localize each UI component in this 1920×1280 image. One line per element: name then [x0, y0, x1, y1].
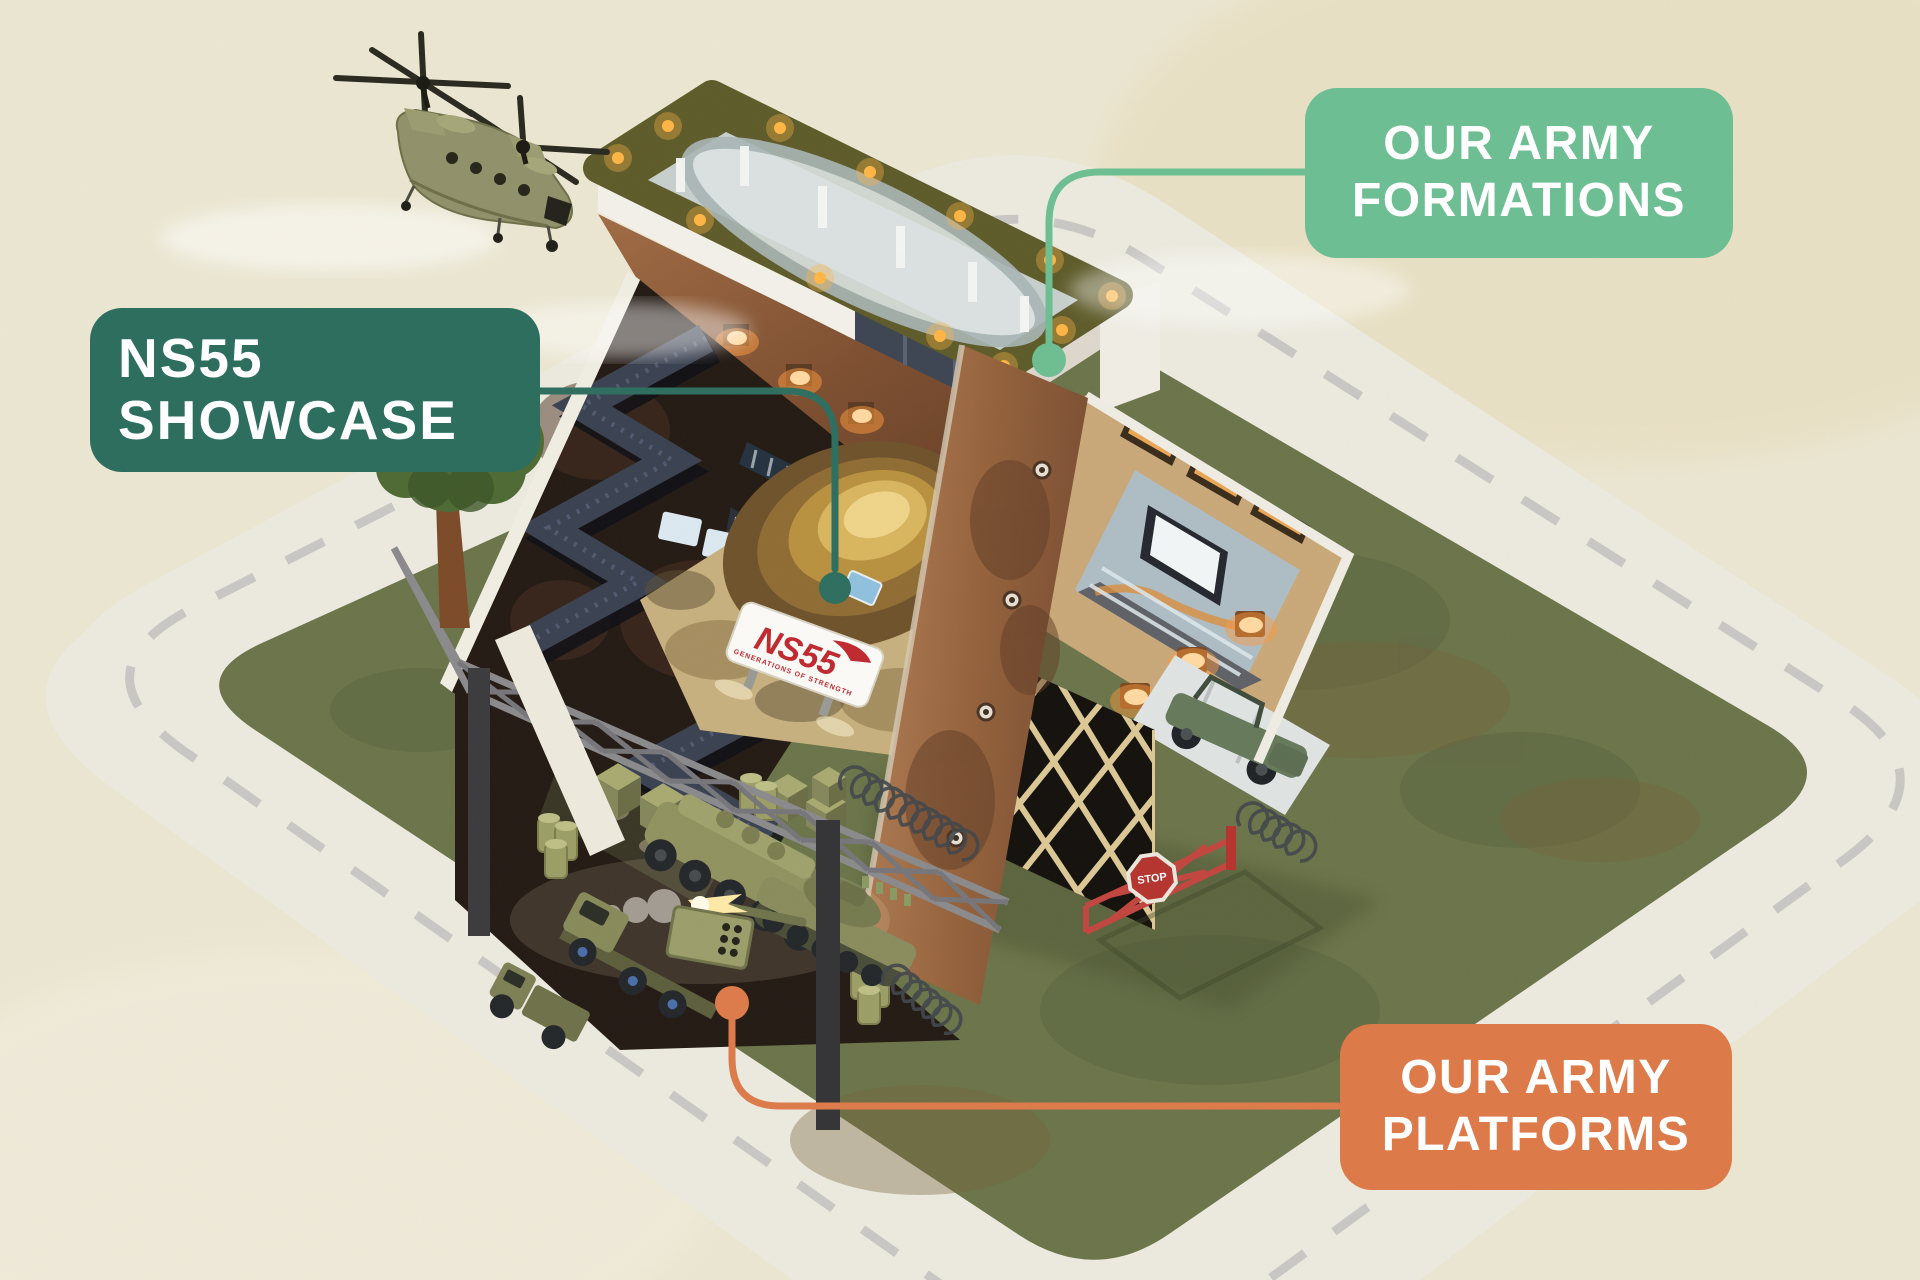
- showcase-label-line2: SHOWCASE: [118, 390, 458, 452]
- showcase-label[interactable]: NS55 SHOWCASE: [90, 308, 540, 472]
- infographic-canvas: NS55 GENERATIONS OF STRENGTH: [0, 0, 1920, 1280]
- formations-label-line2: FORMATIONS: [1352, 173, 1686, 230]
- platforms-label-line1: OUR ARMY: [1400, 1050, 1672, 1107]
- platforms-label[interactable]: OUR ARMY PLATFORMS: [1340, 1024, 1732, 1190]
- formations-label[interactable]: OUR ARMY FORMATIONS: [1305, 88, 1733, 258]
- formations-label-line1: OUR ARMY: [1383, 116, 1655, 173]
- showcase-label-line1: NS55: [118, 328, 264, 390]
- platforms-label-line2: PLATFORMS: [1382, 1107, 1691, 1164]
